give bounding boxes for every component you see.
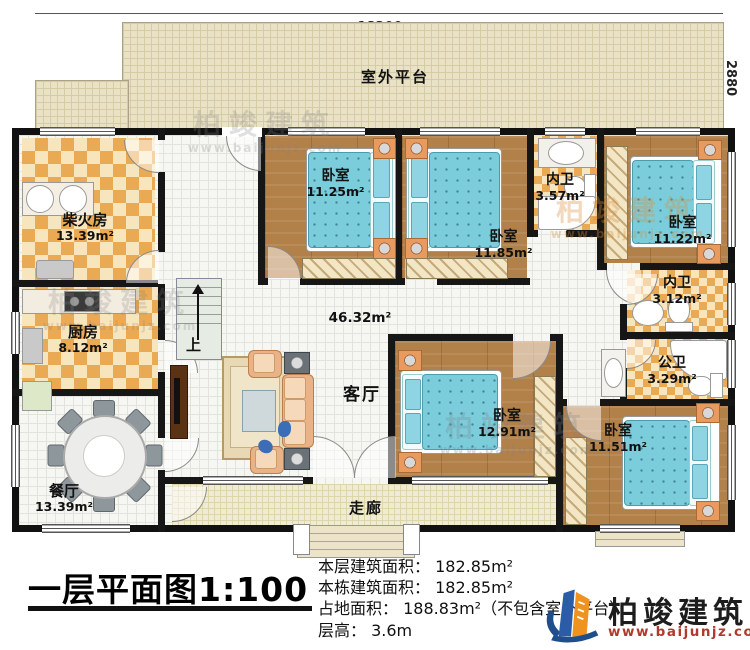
nightstand	[696, 403, 720, 423]
wok-burner	[59, 185, 87, 213]
room-label-corridor: 走廊	[330, 497, 402, 518]
window	[727, 283, 736, 325]
wall	[597, 128, 604, 270]
nightstand	[398, 350, 422, 371]
wall	[158, 470, 165, 532]
wall	[158, 128, 165, 140]
wok-burner	[26, 185, 54, 213]
nightstand	[398, 452, 422, 473]
pillow	[373, 158, 390, 198]
window	[420, 127, 500, 136]
info-floor-height: 层高： 3.6m	[318, 617, 412, 641]
toilet-tank	[665, 322, 693, 332]
side-table	[284, 448, 310, 470]
company-logo-url: www.baijunjz.com	[608, 624, 750, 640]
window	[11, 425, 20, 487]
sofa-cushion	[284, 377, 306, 399]
window	[42, 524, 130, 533]
dimension-right-upper: 2880	[723, 60, 738, 122]
wall	[258, 278, 268, 285]
wall	[158, 172, 165, 252]
nightstand	[698, 140, 722, 160]
nightstand	[405, 138, 428, 159]
room-label-bedroom5: 卧室 11.51m²	[584, 424, 652, 454]
room-label-bedroom1: 卧室 11.25m²	[298, 169, 373, 199]
window	[727, 152, 736, 247]
pillow	[692, 464, 708, 499]
stair-arrow-head	[192, 284, 204, 294]
wall	[556, 334, 563, 532]
wardrobe	[606, 146, 628, 260]
room-label-ensuite2: 内卫 3.12m²	[644, 276, 710, 306]
sink-oval	[548, 141, 584, 165]
pillow	[411, 202, 428, 242]
pillow	[405, 379, 421, 410]
window	[600, 524, 680, 533]
nightstand	[405, 238, 428, 259]
cooktop	[64, 291, 100, 312]
outdoor-platform-left-wing	[35, 80, 129, 132]
sofa-cushion	[284, 399, 306, 421]
company-logo-icon	[540, 583, 602, 643]
wall	[437, 278, 530, 285]
wall	[640, 263, 735, 270]
nightstand	[373, 238, 396, 259]
room-label-bedroom3: 卧室 11.22m²	[645, 216, 720, 246]
dining-table-top	[83, 435, 125, 477]
title-underline	[28, 606, 312, 611]
sink	[36, 260, 74, 279]
room-label-bedroom2: 卧室 11.85m²	[466, 230, 541, 260]
pillow	[696, 165, 712, 200]
tv	[174, 378, 180, 424]
dining-chair	[48, 445, 65, 467]
floorplan-canvas: 18200 2880 10000 室外平台	[0, 0, 750, 650]
wall	[300, 278, 405, 285]
room-label-publicbath: 公卫 3.29m²	[638, 356, 706, 386]
pillow	[373, 202, 390, 242]
window	[203, 476, 303, 485]
window	[11, 312, 20, 354]
room-area-living: 46.32m²	[315, 311, 405, 326]
dining-chair	[146, 445, 163, 467]
room-label-bedroom4: 卧室 12.91m²	[473, 409, 541, 439]
wall	[597, 263, 607, 270]
armchair-cushion	[253, 353, 275, 373]
room-label-dining: 餐厅 13.39m²	[18, 483, 110, 514]
nightstand	[696, 501, 720, 521]
room-label-firewood: 柴火房 13.39m²	[30, 212, 140, 243]
window	[288, 127, 365, 136]
window	[412, 476, 548, 485]
nightstand	[373, 138, 396, 159]
room-label-ensuite1: 内卫 3.57m²	[528, 173, 592, 203]
wall	[388, 334, 513, 341]
window	[40, 127, 115, 136]
room-label-kitchen: 厨房 8.12m²	[33, 324, 133, 355]
stair-arrow	[197, 292, 199, 340]
window	[727, 340, 736, 388]
toilet-tank	[710, 373, 723, 398]
wardrobe	[406, 258, 508, 279]
nightstand	[697, 244, 721, 264]
wall	[620, 332, 735, 339]
window	[636, 127, 700, 136]
page-title: 一层平面图1:100	[28, 563, 308, 611]
bed-mattress	[308, 152, 372, 248]
cabinet	[22, 381, 52, 411]
side-table	[284, 352, 310, 374]
wall	[158, 372, 165, 438]
sink-oval	[604, 358, 623, 388]
pillow	[405, 413, 421, 444]
decor-plant	[278, 421, 291, 437]
coffee-table	[242, 390, 276, 432]
window	[727, 425, 736, 500]
step-pillar	[293, 524, 310, 555]
pillow	[411, 158, 428, 198]
dimension-line-top	[35, 13, 723, 14]
step-pillar	[403, 524, 420, 555]
window	[545, 127, 585, 136]
stairs-up-label: 上	[186, 334, 203, 355]
room-label-platform: 室外平台	[335, 66, 455, 87]
side-steps	[595, 531, 685, 547]
wall	[158, 284, 165, 340]
wall	[395, 128, 402, 285]
pillow	[692, 426, 708, 461]
wardrobe	[302, 258, 396, 279]
room-label-living: 客厅	[322, 386, 402, 405]
